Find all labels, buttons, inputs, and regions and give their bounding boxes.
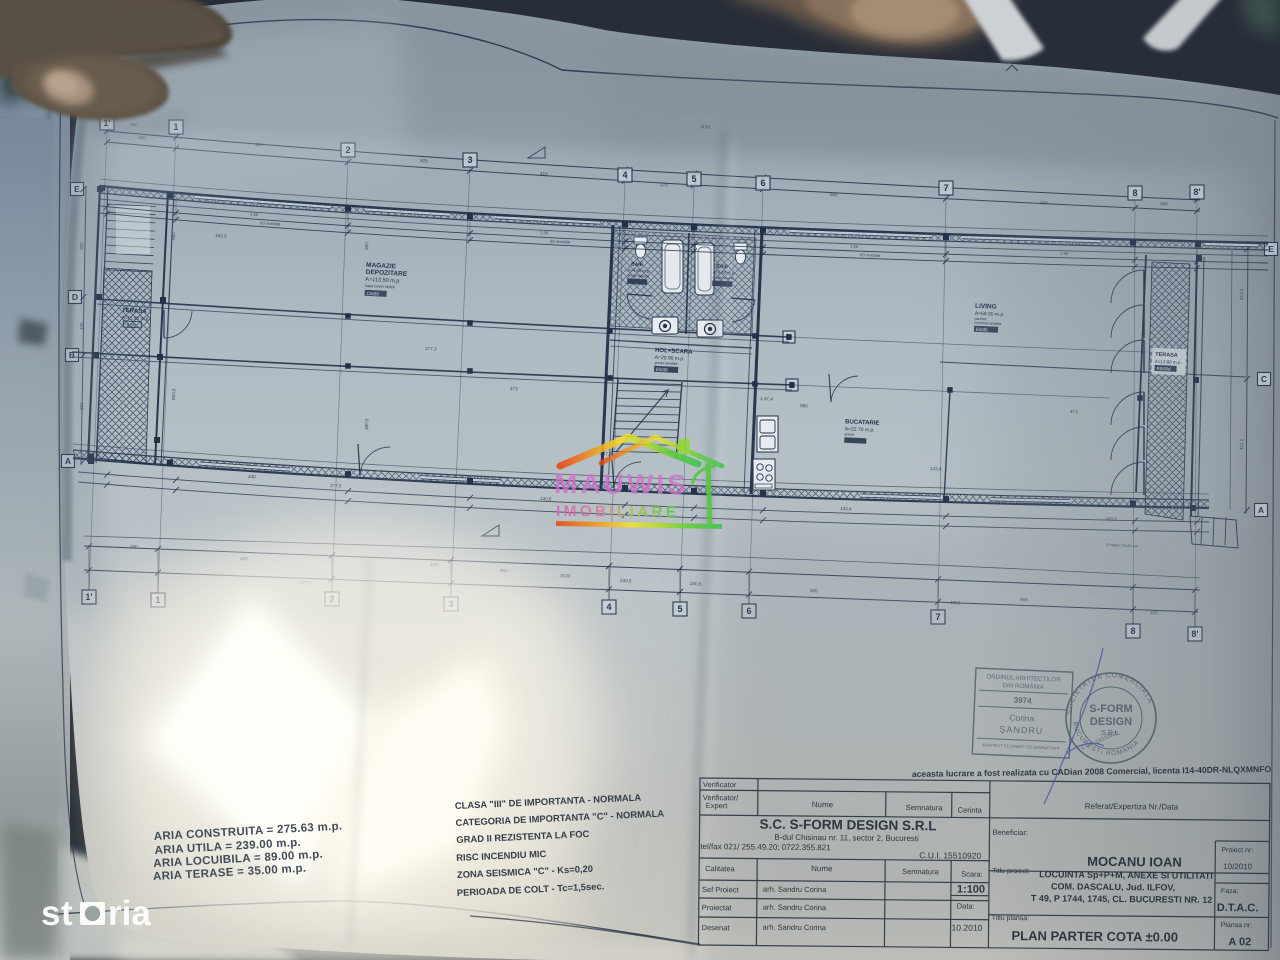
svg-text:350: 350: [364, 242, 369, 250]
svg-text:MAUWIS: MAUWIS: [554, 468, 689, 500]
svg-text:Semnatura: Semnatura: [902, 867, 940, 876]
svg-text:Data:: Data:: [957, 901, 975, 910]
svg-text:60 nivelate: 60 nivelate: [860, 252, 881, 258]
svg-text:LOCUINTA Sp+P+M, ANEXE SI UTIL: LOCUINTA Sp+P+M, ANEXE SI UTILITATI: [1039, 869, 1213, 881]
svg-text:D.T.A.C.: D.T.A.C.: [1217, 902, 1259, 914]
svg-text:A 02: A 02: [1228, 936, 1251, 948]
svg-text:10/2010: 10/2010: [1223, 862, 1253, 871]
svg-text:853,5: 853,5: [171, 388, 176, 400]
svg-text:380,5: 380,5: [364, 418, 369, 430]
svg-text:Faza:: Faza:: [1221, 888, 1239, 895]
svg-text:4: 4: [622, 170, 627, 180]
svg-text:B-dul Chisinau nr. 11, sector: B-dul Chisinau nr. 11, sector 2, Bucures…: [774, 833, 919, 843]
svg-text:Proiect nr:: Proiect nr:: [1221, 847, 1253, 854]
svg-text:10.2010: 10.2010: [952, 922, 983, 932]
svg-text:MOCANU IOAN: MOCANU IOAN: [1087, 854, 1182, 870]
svg-text:S-FORM: S-FORM: [1089, 703, 1132, 715]
svg-text:ria: ria: [108, 894, 151, 933]
svg-text:473: 473: [510, 386, 518, 391]
svg-text:950: 950: [171, 232, 176, 240]
svg-text:980: 980: [800, 403, 808, 408]
svg-text:277,3: 277,3: [425, 346, 437, 352]
svg-text:240: 240: [248, 474, 256, 479]
svg-text:Beneficiar:: Beneficiar:: [992, 828, 1028, 837]
svg-text:COM. DASCALU, Jud. ILFOV,: COM. DASCALU, Jud. ILFOV,: [1051, 881, 1175, 892]
svg-text:DESIGN: DESIGN: [1090, 716, 1132, 728]
svg-text:Plansa nr:: Plansa nr:: [1221, 922, 1253, 929]
svg-text:3130: 3130: [560, 573, 571, 578]
svg-text:arh. Sandru Corina: arh. Sandru Corina: [763, 923, 827, 933]
svg-text:ŞANDRU: ŞANDRU: [999, 724, 1043, 736]
svg-text:Titlu proiect:: Titlu proiect:: [992, 868, 1030, 875]
svg-text:Calitatea: Calitatea: [705, 864, 736, 873]
svg-text:143,4: 143,4: [930, 466, 942, 472]
svg-text:Titlu plansa:: Titlu plansa:: [992, 915, 1030, 922]
svg-text:230,5: 230,5: [690, 581, 702, 587]
svg-text:60 nivelate: 60 nivelate: [260, 221, 281, 227]
svg-text:Nume: Nume: [812, 800, 834, 809]
svg-text:Scara:: Scara:: [961, 870, 983, 879]
svg-text:Corina: Corina: [1009, 713, 1035, 724]
svg-text:4: 4: [606, 602, 611, 612]
svg-text:3: 3: [467, 155, 472, 165]
svg-text:1,50: 1,50: [540, 230, 549, 235]
svg-text:5: 5: [677, 604, 682, 614]
svg-text:Nume: Nume: [811, 864, 833, 873]
svg-text:CSi30: CSi30: [367, 291, 380, 297]
svg-text:60 nivelate: 60 nivelate: [550, 239, 571, 245]
svg-text:Verificator: Verificator: [703, 780, 737, 789]
svg-text:805: 805: [830, 192, 838, 197]
svg-text:200: 200: [130, 544, 138, 549]
svg-text:230,5: 230,5: [620, 578, 632, 584]
svg-text:Expert: Expert: [706, 801, 729, 810]
svg-text:PLAN PARTER COTA ±0.00: PLAN PARTER COTA ±0.00: [1011, 928, 1178, 945]
svg-text:163,3: 163,3: [215, 233, 227, 239]
svg-text:tel/fax 021/ 255.49.20; 0722.3: tel/fax 021/ 255.49.20; 0722.355.821: [700, 842, 831, 852]
svg-text:arh. Sandru Corina: arh. Sandru Corina: [763, 885, 827, 895]
svg-text:Proiectat: Proiectat: [702, 903, 733, 912]
svg-text:175: 175: [660, 182, 668, 187]
svg-text:1,50: 1,50: [850, 244, 859, 249]
svg-text:S.C. S-FORM DESIGN S.R.L: S.C. S-FORM DESIGN S.R.L: [759, 817, 936, 834]
svg-text:5: 5: [691, 174, 696, 184]
svg-text:277,5: 277,5: [330, 483, 342, 489]
svg-text:1,97,4: 1,97,4: [760, 396, 773, 402]
svg-text:-0,50: -0,50: [125, 322, 136, 328]
svg-text:1:100: 1:100: [957, 883, 985, 895]
svg-text:st: st: [41, 894, 73, 933]
svg-text:140,5: 140,5: [540, 496, 552, 502]
svg-text:6: 6: [760, 178, 765, 188]
svg-text:C.U.I. 15510920: C.U.I. 15510920: [919, 850, 981, 861]
svg-text:IMOBILIARE: IMOBILIARE: [556, 503, 679, 521]
svg-text:Desenat: Desenat: [702, 923, 731, 932]
svg-text:gresie: gresie: [844, 432, 854, 436]
svg-text:8': 8': [1193, 187, 1200, 197]
svg-text:415: 415: [540, 171, 548, 176]
svg-text:7: 7: [943, 183, 948, 193]
svg-text:925: 925: [420, 158, 428, 163]
svg-text:Referat/Expertiza Nr./Data: Referat/Expertiza Nr./Data: [1085, 802, 1179, 812]
svg-text:T 49, P 1744, 1745, CL. BUCURE: T 49, P 1744, 1745, CL. BUCURESTI NR. 12: [1031, 893, 1212, 905]
svg-text:Sef Proiect: Sef Proiect: [702, 885, 740, 894]
svg-text:E5i30: E5i30: [656, 367, 668, 373]
svg-text:1,50: 1,50: [250, 212, 259, 217]
svg-text:3974: 3974: [1014, 696, 1033, 706]
svg-text:143,4: 143,4: [840, 506, 852, 512]
svg-text:Cerinta: Cerinta: [958, 805, 983, 814]
svg-text:arh. Sandru Corina: arh. Sandru Corina: [763, 903, 827, 913]
svg-text:8: 8: [1132, 188, 1137, 198]
svg-text:Semnatura: Semnatura: [906, 803, 944, 812]
